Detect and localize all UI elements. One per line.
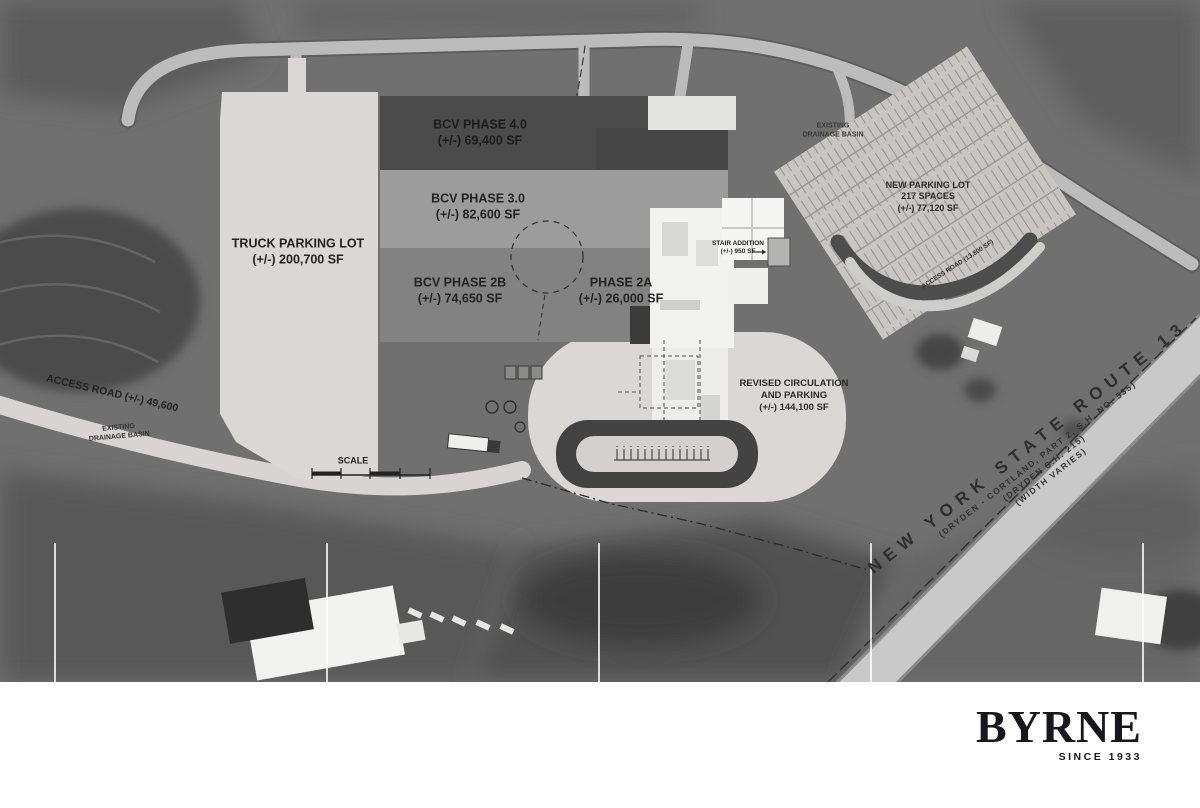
phase-2b-size: (+/-) 74,650 SF bbox=[414, 291, 506, 307]
byrne-tagline: SINCE 1933 bbox=[976, 751, 1142, 763]
drainage-ne-line1: EXISTING bbox=[802, 122, 863, 131]
revised-size: (+/-) 144,100 SF bbox=[739, 402, 848, 414]
phase-4-size: (+/-) 69,400 SF bbox=[433, 133, 527, 149]
phase-2b-name: BCV PHASE 2B bbox=[414, 275, 506, 291]
truck-lot-size: (+/-) 200,700 SF bbox=[232, 252, 364, 268]
phase-2a-size: (+/-) 26,000 SF bbox=[579, 291, 663, 307]
truck-lot-name: TRUCK PARKING LOT bbox=[232, 236, 364, 252]
bus-loop bbox=[556, 420, 758, 488]
revised-line2: AND PARKING bbox=[739, 390, 848, 402]
site-plan-page: BCV PHASE 4.0 (+/-) 69,400 SF BCV PHASE … bbox=[0, 0, 1200, 808]
label-phase-2b: BCV PHASE 2B (+/-) 74,650 SF bbox=[414, 275, 506, 306]
label-phase-4: BCV PHASE 4.0 (+/-) 69,400 SF bbox=[433, 117, 527, 148]
label-scale: SCALE bbox=[338, 455, 369, 466]
byrne-wordmark: BYRNE bbox=[976, 704, 1142, 750]
scale-text: SCALE bbox=[338, 455, 369, 466]
label-phase-2a: PHASE 2A (+/-) 26,000 SF bbox=[579, 275, 663, 306]
truck-parking-lot bbox=[220, 92, 378, 480]
phase-4-name: BCV PHASE 4.0 bbox=[433, 117, 527, 133]
label-truck-lot: TRUCK PARKING LOT (+/-) 200,700 SF bbox=[232, 236, 364, 267]
new-parking-name: NEW PARKING LOT bbox=[886, 180, 971, 191]
new-parking-spaces: 217 SPACES bbox=[886, 191, 971, 202]
label-stair-addition: STAIR ADDITION (+/-) 950 SF bbox=[712, 240, 764, 256]
revised-line1: REVISED CIRCULATION bbox=[739, 378, 848, 390]
stair-name: STAIR ADDITION bbox=[712, 240, 764, 248]
new-parking-size: (+/-) 77,120 SF bbox=[886, 203, 971, 214]
phase-4-extension bbox=[596, 128, 728, 170]
aerial-site-plan bbox=[0, 0, 1200, 682]
phase-3-size: (+/-) 82,600 SF bbox=[431, 207, 525, 223]
label-drainage-ne: EXISTING DRAINAGE BASIN bbox=[802, 122, 863, 140]
phase-3-name: BCV PHASE 3.0 bbox=[431, 191, 525, 207]
label-revised-circulation: REVISED CIRCULATION AND PARKING (+/-) 14… bbox=[739, 378, 848, 414]
label-phase-3: BCV PHASE 3.0 (+/-) 82,600 SF bbox=[431, 191, 525, 222]
phase-2a-name: PHASE 2A bbox=[579, 275, 663, 291]
drainage-ne-line2: DRAINAGE BASIN bbox=[802, 131, 863, 140]
stair-addition-footprint bbox=[768, 238, 790, 266]
stair-size: (+/-) 950 SF bbox=[712, 248, 764, 256]
truck-lot-driveway bbox=[288, 58, 306, 98]
byrne-logo: BYRNE SINCE 1933 bbox=[976, 704, 1142, 763]
label-new-parking: NEW PARKING LOT 217 SPACES (+/-) 77,120 … bbox=[886, 180, 971, 214]
